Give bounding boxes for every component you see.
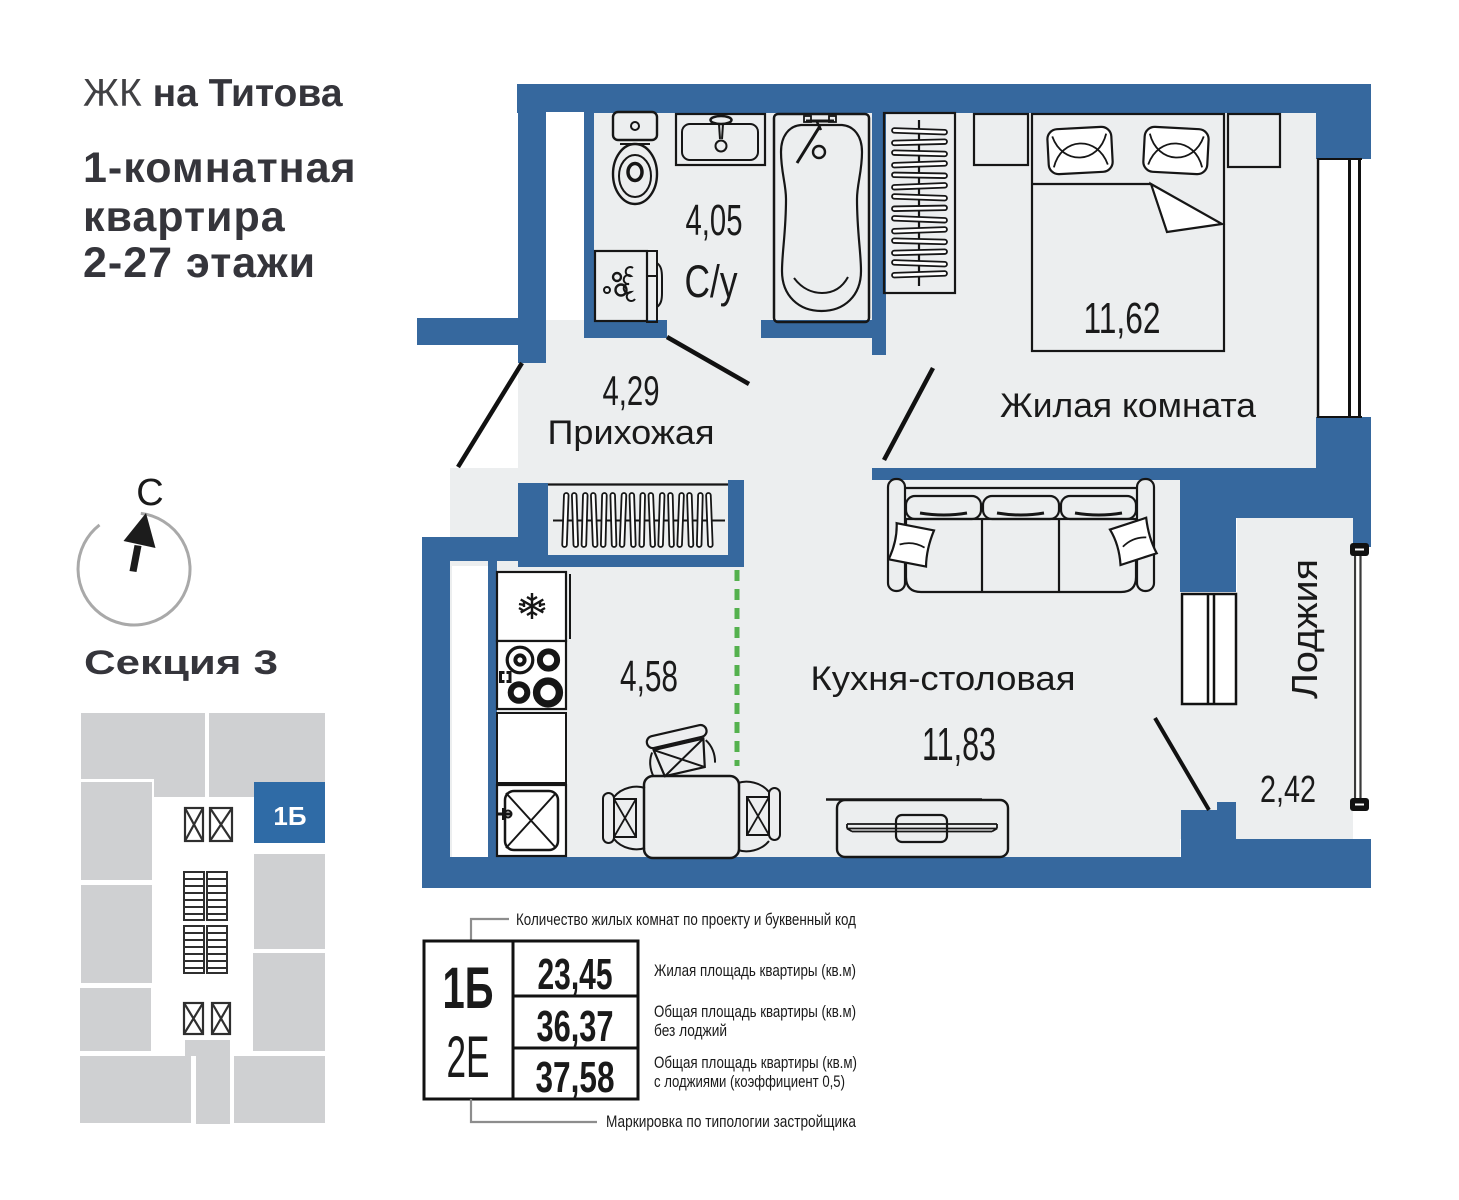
svg-text:2,42: 2,42 — [1260, 769, 1316, 811]
svg-text:11,62: 11,62 — [1084, 294, 1161, 343]
svg-text:2Е: 2Е — [447, 1025, 490, 1090]
svg-text:11,83: 11,83 — [922, 718, 996, 770]
svg-text:4,29: 4,29 — [603, 367, 660, 414]
svg-text:36,37: 36,37 — [537, 1002, 614, 1051]
svg-text:23,45: 23,45 — [538, 950, 613, 999]
svg-text:квартира: квартира — [83, 193, 286, 241]
svg-text:Жилая комната: Жилая комната — [1000, 387, 1256, 425]
svg-text:Общая площадь квартиры (кв.м): Общая площадь квартиры (кв.м) — [654, 1002, 856, 1021]
svg-text:С/у: С/у — [685, 256, 738, 307]
svg-text:с лоджиями (коэффициент 0,5): с лоджиями (коэффициент 0,5) — [654, 1072, 845, 1091]
svg-text:Количество жилых комнат по про: Количество жилых комнат по проекту и бук… — [516, 910, 856, 929]
svg-text:ЖК на Титова: ЖК на Титова — [83, 72, 343, 115]
svg-text:1Б: 1Б — [443, 956, 494, 1021]
svg-text:Маркировка по типологии застро: Маркировка по типологии застройщика — [606, 1112, 856, 1131]
svg-text:4,05: 4,05 — [686, 196, 743, 245]
svg-text:37,58: 37,58 — [536, 1053, 615, 1102]
svg-text:2-27 этажи: 2-27 этажи — [83, 239, 316, 287]
svg-text:Кухня-столовая: Кухня-столовая — [811, 660, 1076, 698]
svg-text:Общая площадь квартиры (кв.м): Общая площадь квартиры (кв.м) — [654, 1053, 857, 1072]
svg-text:Лоджия: Лоджия — [1284, 559, 1325, 699]
svg-text:без лоджий: без лоджий — [654, 1021, 727, 1040]
svg-text:Прихожая: Прихожая — [548, 414, 715, 452]
svg-text:1Б: 1Б — [273, 801, 306, 831]
svg-text:Жилая площадь квартиры (кв.м): Жилая площадь квартиры (кв.м) — [654, 961, 856, 980]
svg-text:Секция 3: Секция 3 — [84, 644, 278, 682]
svg-text:4,58: 4,58 — [620, 652, 678, 701]
svg-text:С: С — [136, 472, 163, 514]
svg-text:1-комнатная: 1-комнатная — [83, 144, 357, 192]
